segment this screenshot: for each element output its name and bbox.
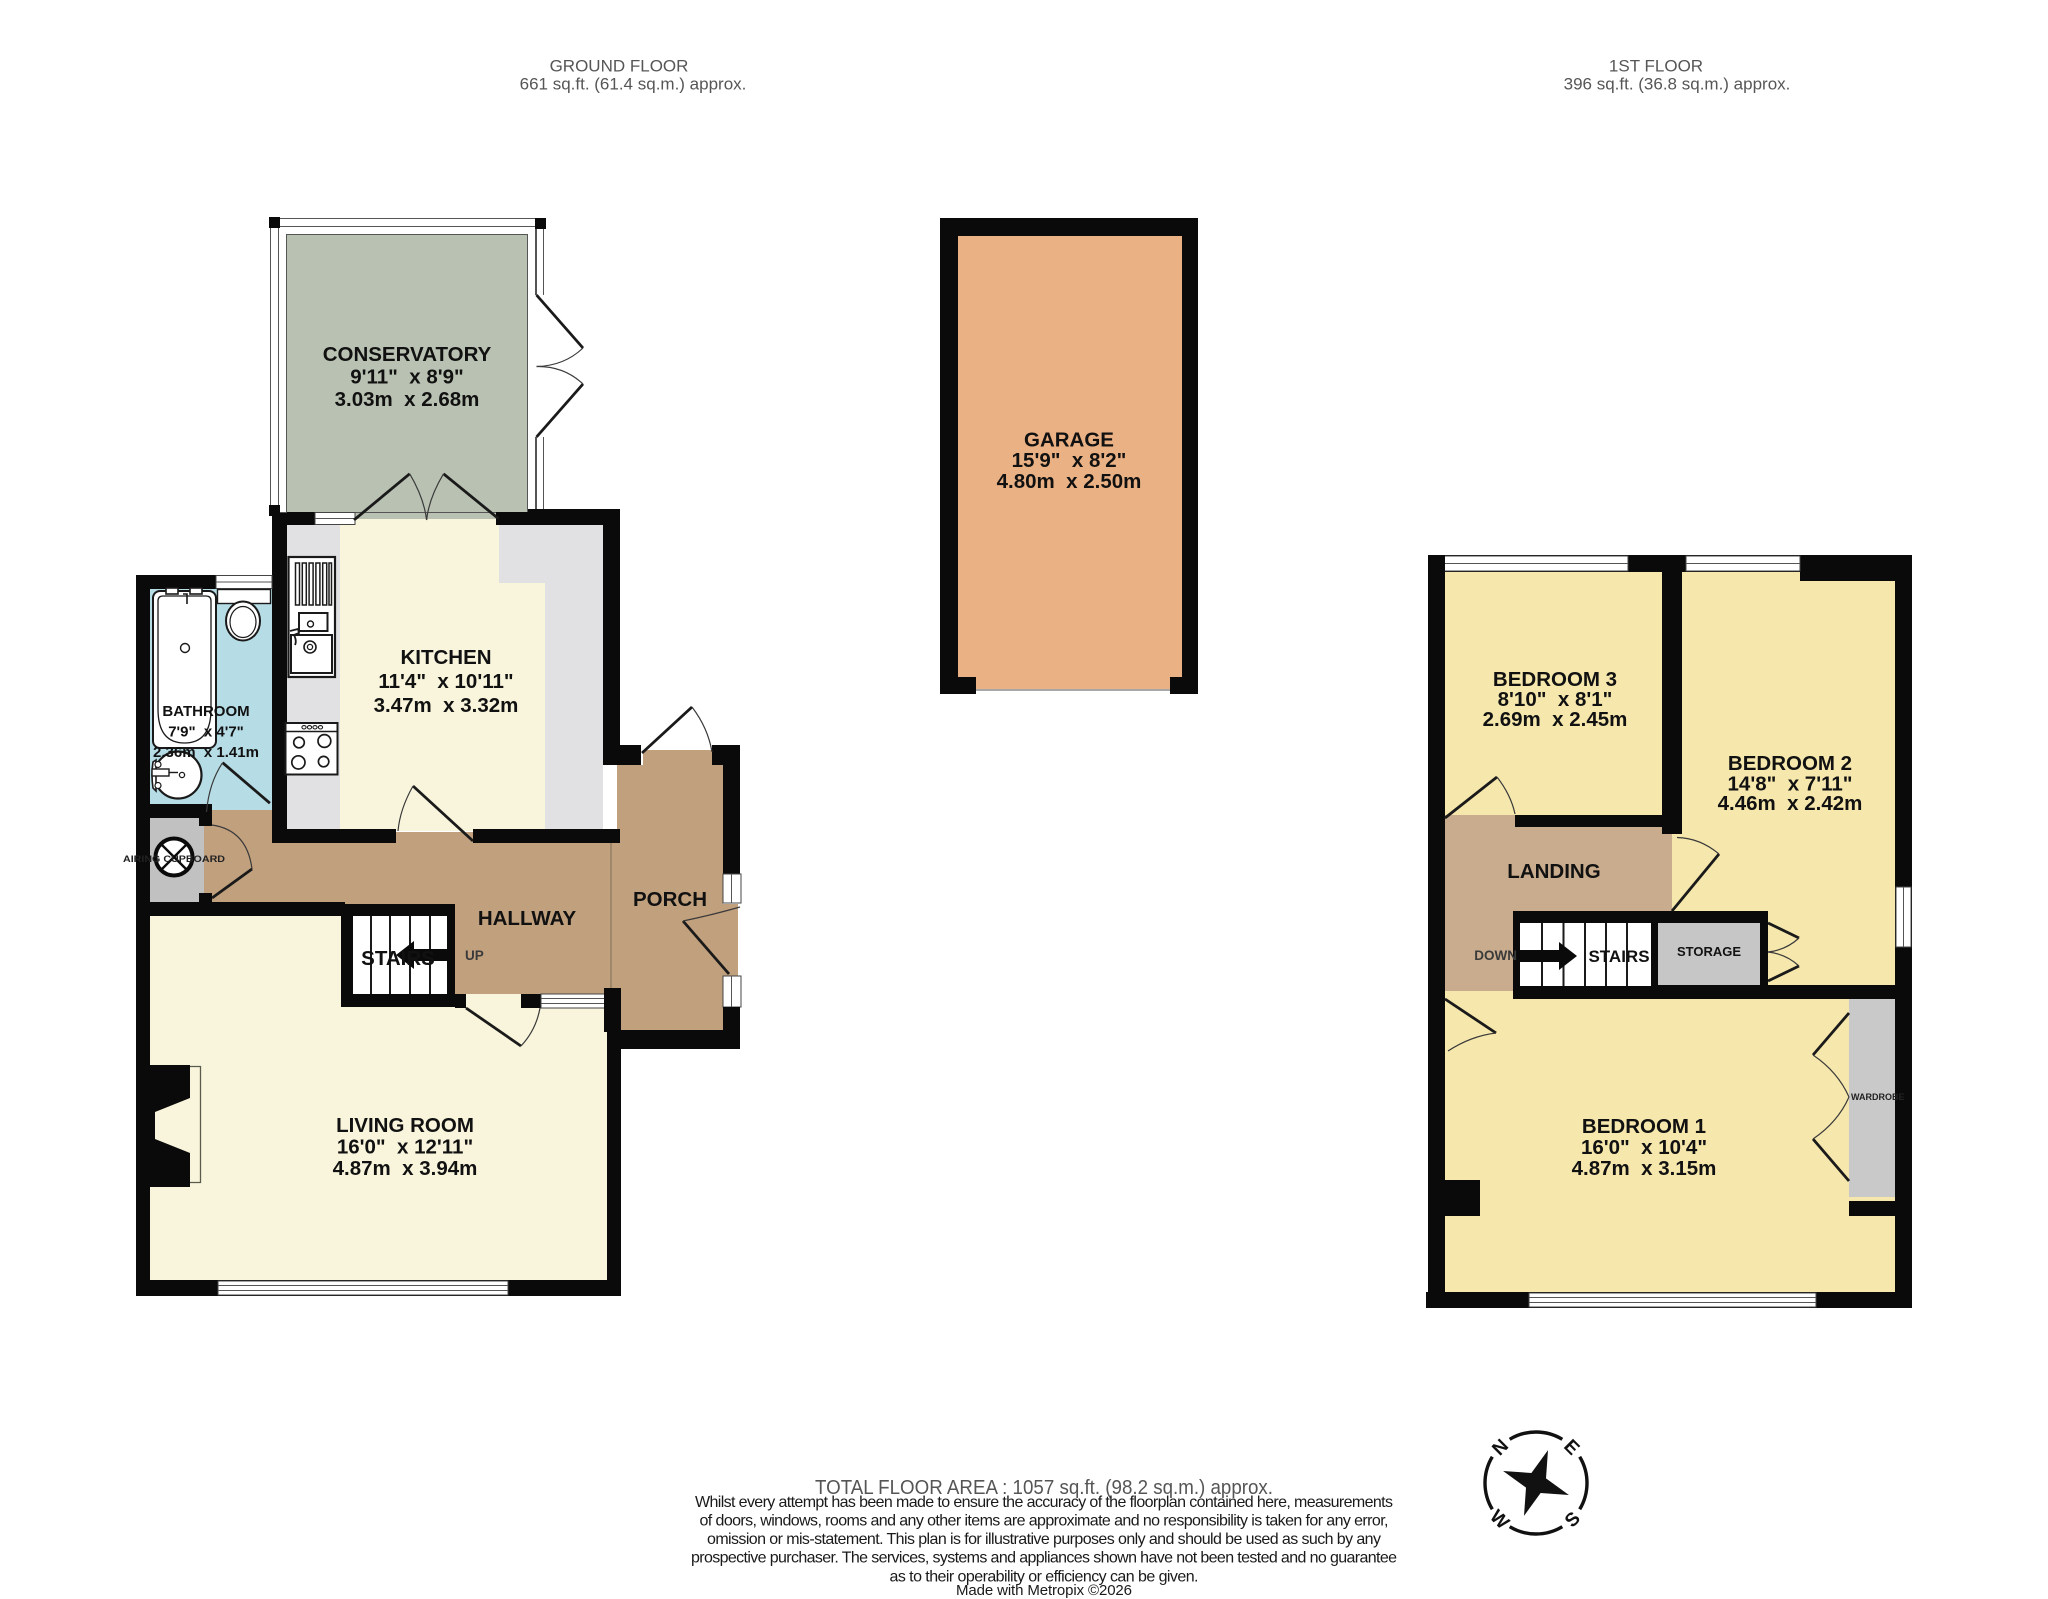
svg-text:9'11" x 8'9": 9'11" x 8'9" [350,366,464,389]
svg-text:11'4" x 10'11": 11'4" x 10'11" [378,670,513,693]
svg-text:15'9" x 8'2": 15'9" x 8'2" [1012,449,1127,472]
svg-text:2.69m x 2.45m: 2.69m x 2.45m [1483,708,1628,731]
svg-text:STAIRS: STAIRS [361,947,435,970]
svg-text:Whilst every attempt has been: Whilst every attempt has been made to en… [695,1494,1393,1511]
svg-text:396 sq.ft. (36.8 sq.m.) approx: 396 sq.ft. (36.8 sq.m.) approx. [1564,75,1791,94]
svg-text:16'0" x 12'11": 16'0" x 12'11" [337,1136,473,1159]
svg-text:Made with Metropix ©2026: Made with Metropix ©2026 [956,1582,1132,1599]
svg-text:BEDROOM 1: BEDROOM 1 [1582,1115,1706,1138]
svg-text:LANDING: LANDING [1507,860,1600,883]
svg-text:1ST FLOOR: 1ST FLOOR [1609,57,1703,76]
svg-text:STORAGE: STORAGE [1677,944,1741,959]
svg-text:661 sq.ft. (61.4 sq.m.) approx: 661 sq.ft. (61.4 sq.m.) approx. [520,75,747,94]
svg-text:BATHROOM: BATHROOM [162,703,249,720]
svg-text:GROUND FLOOR: GROUND FLOOR [550,57,689,76]
svg-text:WARDROBE: WARDROBE [1851,1092,1905,1102]
svg-text:PORCH: PORCH [633,888,707,911]
svg-text:omission or mis-statement. Thi: omission or mis-statement. This plan is … [707,1531,1381,1548]
svg-text:4.87m x 3.15m: 4.87m x 3.15m [1572,1157,1717,1180]
svg-text:AIRING CUPBOARD: AIRING CUPBOARD [123,854,226,864]
svg-text:STAIRS: STAIRS [1588,947,1649,966]
svg-text:16'0" x 10'4": 16'0" x 10'4" [1581,1136,1707,1159]
svg-text:UP: UP [465,948,484,963]
svg-text:KITCHEN: KITCHEN [400,646,491,669]
svg-text:of doors, windows, rooms and a: of doors, windows, rooms and any other i… [700,1513,1389,1530]
svg-text:HALLWAY: HALLWAY [478,907,577,930]
svg-text:LIVING ROOM: LIVING ROOM [336,1114,474,1137]
svg-text:prospective purchaser. The ser: prospective purchaser. The services, sys… [691,1550,1397,1567]
svg-text:CONSERVATORY: CONSERVATORY [323,343,492,366]
svg-text:4.87m x 3.94m: 4.87m x 3.94m [333,1157,478,1180]
svg-text:DOWN: DOWN [1474,948,1517,963]
svg-text:4.80m x 2.50m: 4.80m x 2.50m [997,470,1142,493]
svg-text:7'9" x 4'7": 7'9" x 4'7" [168,724,244,741]
svg-text:2.36m x 1.41m: 2.36m x 1.41m [153,744,259,761]
svg-text:4.46m x 2.42m: 4.46m x 2.42m [1718,792,1863,815]
svg-text:3.03m x 2.68m: 3.03m x 2.68m [335,388,480,411]
svg-text:3.47m x 3.32m: 3.47m x 3.32m [374,694,519,717]
